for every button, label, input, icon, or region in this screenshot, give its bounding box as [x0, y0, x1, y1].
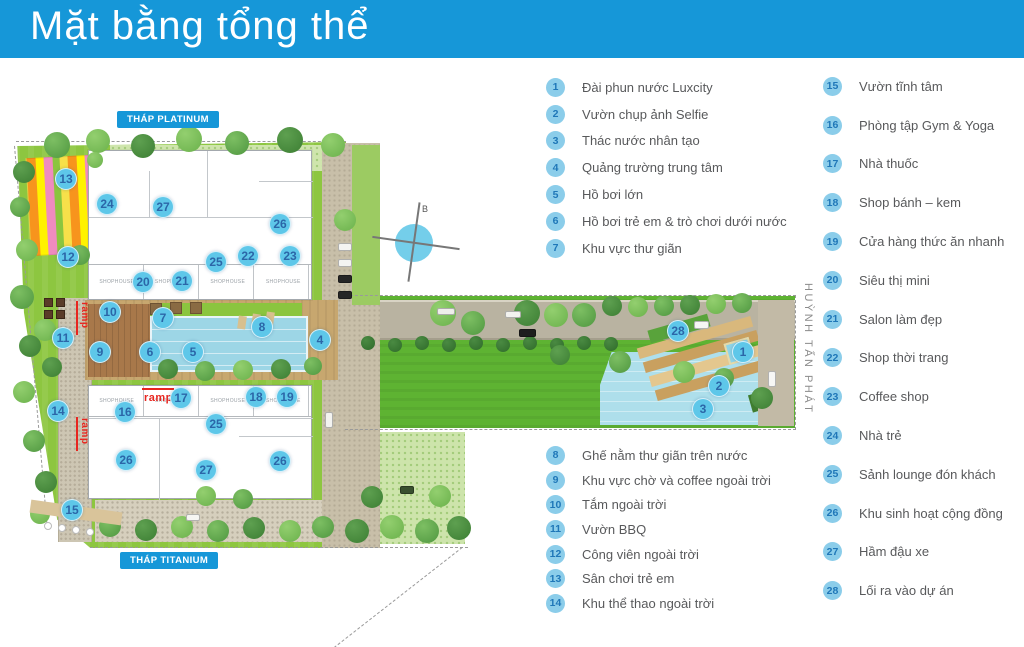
legend-column-center-bottom: 8Ghế nằm thư giãn trên nước9Khu vực chờ …	[546, 443, 771, 616]
legend-item-label: Vườn BBQ	[582, 522, 646, 537]
tree	[196, 486, 216, 506]
tree	[131, 134, 155, 158]
legend-item-label: Siêu thị mini	[859, 273, 930, 288]
tree	[87, 152, 103, 168]
tree	[523, 336, 537, 350]
legend-item-12: 12Công viên ngoài trời	[546, 542, 771, 567]
tree	[321, 133, 345, 157]
map-marker-20: 20	[132, 271, 154, 293]
vehicle-icon	[325, 412, 333, 428]
tree	[233, 489, 253, 509]
tree	[602, 296, 622, 316]
map-marker-4: 4	[309, 329, 331, 351]
map-marker-28: 28	[667, 320, 689, 342]
legend-item-20: 20Siêu thị mini	[823, 261, 1004, 300]
tree	[654, 296, 674, 316]
legend-item-label: Hầm đậu xe	[859, 544, 929, 559]
legend-item-label: Salon làm đẹp	[859, 312, 942, 327]
ramp-line	[76, 417, 78, 451]
tree	[86, 129, 110, 153]
tree	[550, 345, 570, 365]
tree	[609, 351, 631, 373]
tree	[469, 336, 483, 350]
legend-number-badge: 28	[823, 581, 842, 600]
map-marker-26: 26	[269, 213, 291, 235]
lounge-chair	[86, 528, 94, 536]
legend-item-10: 10Tắm ngoài trời	[546, 492, 771, 517]
legend-item-label: Tắm ngoài trời	[582, 497, 666, 512]
tree	[207, 520, 229, 542]
vehicle-icon	[338, 291, 352, 299]
map-marker-21: 21	[171, 270, 193, 292]
tower-label-platinum: THÁP PLATINUM	[117, 111, 219, 128]
tree	[673, 361, 695, 383]
legend-item-label: Quảng trường trung tâm	[582, 160, 723, 175]
legend-item-22: 22Shop thời trang	[823, 339, 1004, 378]
legend-item-label: Vườn tĩnh tâm	[859, 79, 943, 94]
vehicle-icon	[694, 321, 709, 329]
tree	[10, 197, 30, 217]
ramp-label: ramp	[79, 418, 90, 444]
legend-item-11: 11Vườn BBQ	[546, 517, 771, 542]
vehicle-icon	[437, 308, 455, 315]
pergola	[44, 298, 53, 307]
legend-number-badge: 20	[823, 271, 842, 290]
legend-item-25: 25Sảnh lounge đón khách	[823, 455, 1004, 494]
map-marker-3: 3	[692, 398, 714, 420]
tree	[706, 294, 726, 314]
legend-item-label: Khu thể thao ngoài trời	[582, 596, 714, 611]
tree	[429, 485, 451, 507]
ramp-label: ramp	[144, 392, 173, 404]
map-marker-19: 19	[276, 386, 298, 408]
ramp-line	[76, 301, 78, 335]
tree	[415, 519, 439, 543]
map-marker-25: 25	[205, 251, 227, 273]
tree	[447, 516, 471, 540]
legend-number-badge: 13	[546, 569, 565, 588]
map-marker-27: 27	[195, 459, 217, 481]
legend-item-label: Hồ bơi lớn	[582, 187, 643, 202]
legend-item-13: 13Sân chơi trẻ em	[546, 566, 771, 591]
room-label: SHOPHOUSE	[99, 279, 134, 285]
compass-north-label: B	[422, 204, 428, 214]
legend-item-17: 17Nhà thuốc	[823, 145, 1004, 184]
legend-item-14: 14Khu thể thao ngoài trời	[546, 591, 771, 616]
vehicle-icon	[338, 275, 352, 283]
legend-number-badge: 6	[546, 212, 565, 231]
street-label: HUỲNH TẤN PHÁT	[802, 283, 814, 414]
legend-number-badge: 15	[823, 77, 842, 96]
tree	[23, 430, 45, 452]
legend-number-badge: 23	[823, 387, 842, 406]
map-marker-5: 5	[182, 341, 204, 363]
page-header: Mặt bằng tổng thể	[0, 0, 1024, 58]
vehicle-icon	[400, 486, 414, 494]
tree	[415, 336, 429, 350]
legend-number-badge: 7	[546, 239, 565, 258]
tree	[44, 132, 70, 158]
tree	[135, 519, 157, 541]
legend-number-badge: 12	[546, 545, 565, 564]
map-marker-14: 14	[47, 400, 69, 422]
tree	[279, 520, 301, 542]
legend-number-badge: 21	[823, 310, 842, 329]
legend-item-label: Cửa hàng thức ăn nhanh	[859, 234, 1004, 249]
map-marker-16: 16	[114, 401, 136, 423]
legend-item-2: 2Vườn chụp ảnh Selfie	[546, 101, 787, 128]
vehicle-icon	[768, 371, 776, 387]
tree	[572, 303, 596, 327]
vehicle-icon	[338, 259, 352, 267]
tree	[176, 126, 202, 152]
pergola	[56, 310, 65, 319]
tree	[544, 303, 568, 327]
legend-item-6: 6Hồ bơi trẻ em & trò chơi dưới nước	[546, 208, 787, 235]
tree	[628, 297, 648, 317]
legend-item-label: Nhà thuốc	[859, 156, 918, 171]
legend-item-label: Khu vực chờ và coffee ngoài trời	[582, 473, 771, 488]
legend-number-badge: 17	[823, 154, 842, 173]
cabana	[190, 302, 202, 314]
legend-item-label: Coffee shop	[859, 389, 929, 404]
map-marker-12: 12	[57, 246, 79, 268]
tree	[13, 161, 35, 183]
ramp-line	[142, 388, 174, 390]
legend-number-badge: 25	[823, 465, 842, 484]
vehicle-icon	[519, 329, 536, 337]
tower-label-titanium: THÁP TITANIUM	[120, 552, 218, 569]
legend-item-16: 16Phòng tập Gym & Yoga	[823, 106, 1004, 145]
legend-item-label: Sảnh lounge đón khách	[859, 467, 996, 482]
tree	[243, 517, 265, 539]
shophouse-row: SHOPHOUSESHOPHOUSESHOPHOUSESHOPHOUSE	[89, 264, 311, 299]
page-title: Mặt bằng tổng thể	[30, 4, 369, 49]
legend-item-21: 21Salon làm đẹp	[823, 300, 1004, 339]
legend-item-28: 28Lối ra vào dự án	[823, 571, 1004, 610]
map-marker-10: 10	[99, 301, 121, 323]
legend-item-label: Vườn chụp ảnh Selfie	[582, 107, 708, 122]
map-marker-6: 6	[139, 341, 161, 363]
room-label: SHOPHOUSE	[210, 398, 245, 404]
map-marker-23: 23	[279, 245, 301, 267]
tree	[496, 338, 510, 352]
tree	[42, 357, 62, 377]
tree	[195, 361, 215, 381]
tree	[461, 311, 485, 335]
tree	[271, 359, 291, 379]
tree	[158, 359, 178, 379]
map-marker-17: 17	[170, 387, 192, 409]
legend-item-24: 24Nhà trẻ	[823, 416, 1004, 455]
legend-number-badge: 11	[546, 520, 565, 539]
tree	[380, 515, 404, 539]
vehicle-icon	[186, 514, 200, 521]
tree	[10, 285, 34, 309]
map-marker-18: 18	[245, 386, 267, 408]
legend-number-badge: 4	[546, 158, 565, 177]
compass: B	[376, 200, 466, 290]
tree	[304, 357, 322, 375]
pergola	[56, 298, 65, 307]
legend-number-badge: 16	[823, 116, 842, 135]
lounge-chair	[72, 526, 80, 534]
map-marker-11: 11	[52, 327, 74, 349]
tree	[751, 387, 773, 409]
tree	[233, 360, 253, 380]
legend-item-label: Shop bánh – kem	[859, 195, 961, 210]
legend-number-badge: 18	[823, 193, 842, 212]
legend-item-1: 1Đài phun nước Luxcity	[546, 74, 787, 101]
tree	[577, 336, 591, 350]
tree	[732, 293, 752, 313]
legend-item-label: Hồ bơi trẻ em & trò chơi dưới nước	[582, 214, 787, 229]
legend-item-label: Thác nước nhân tạo	[582, 133, 700, 148]
tree	[35, 471, 57, 493]
legend-number-badge: 19	[823, 232, 842, 251]
tree	[345, 519, 369, 543]
map-marker-22: 22	[237, 245, 259, 267]
legend-item-8: 8Ghế nằm thư giãn trên nước	[546, 443, 771, 468]
room-label: SHOPHOUSE	[210, 279, 245, 285]
tree	[312, 516, 334, 538]
legend-item-7: 7Khu vực thư giãn	[546, 235, 787, 262]
map-marker-7: 7	[152, 307, 174, 329]
map-marker-8: 8	[251, 316, 273, 338]
legend-number-badge: 1	[546, 78, 565, 97]
legend-number-badge: 24	[823, 426, 842, 445]
map-marker-15: 15	[61, 499, 83, 521]
legend-number-badge: 14	[546, 594, 565, 613]
tree	[16, 239, 38, 261]
legend-item-label: Sân chơi trẻ em	[582, 571, 674, 586]
tree	[604, 337, 618, 351]
map-marker-24: 24	[96, 193, 118, 215]
legend-item-label: Nhà trẻ	[859, 428, 902, 443]
legend-item-3: 3Thác nước nhân tạo	[546, 128, 787, 155]
pergola	[44, 310, 53, 319]
room-label: SHOPHOUSE	[266, 279, 301, 285]
legend-number-badge: 2	[546, 105, 565, 124]
legend-number-badge: 10	[546, 495, 565, 514]
tree	[388, 338, 402, 352]
site-boundary	[345, 295, 796, 430]
lounge-chair	[58, 524, 66, 532]
legend-number-badge: 27	[823, 542, 842, 561]
site-boundary	[90, 547, 468, 548]
legend-item-19: 19Cửa hàng thức ăn nhanh	[823, 222, 1004, 261]
legend-number-badge: 8	[546, 446, 565, 465]
legend-item-label: Phòng tập Gym & Yoga	[859, 118, 994, 133]
legend-item-label: Ghế nằm thư giãn trên nước	[582, 448, 747, 463]
legend-number-badge: 22	[823, 348, 842, 367]
tree	[277, 127, 303, 153]
legend-item-label: Công viên ngoài trời	[582, 547, 699, 562]
legend-column-right: 15Vườn tĩnh tâm16Phòng tập Gym & Yoga17N…	[823, 67, 1004, 610]
map-marker-26: 26	[115, 449, 137, 471]
legend-item-label: Khu vực thư giãn	[582, 241, 682, 256]
tree	[361, 336, 375, 350]
vehicle-icon	[505, 311, 521, 318]
legend-item-9: 9Khu vực chờ và coffee ngoài trời	[546, 468, 771, 493]
legend-item-26: 26Khu sinh hoạt cộng đồng	[823, 494, 1004, 533]
legend-number-badge: 26	[823, 504, 842, 523]
map-marker-1: 1	[732, 341, 754, 363]
tree	[225, 131, 249, 155]
legend-number-badge: 5	[546, 185, 565, 204]
legend-item-label: Đài phun nước Luxcity	[582, 80, 713, 95]
tree	[361, 486, 383, 508]
tree	[13, 381, 35, 403]
legend-item-18: 18Shop bánh – kem	[823, 183, 1004, 222]
tree	[334, 209, 356, 231]
tree	[442, 338, 456, 352]
legend-item-4: 4Quảng trường trung tâm	[546, 154, 787, 181]
legend-item-23: 23Coffee shop	[823, 377, 1004, 416]
legend-number-badge: 3	[546, 131, 565, 150]
legend-number-badge: 9	[546, 471, 565, 490]
map-marker-25: 25	[205, 413, 227, 435]
tree	[680, 295, 700, 315]
ramp-label: ramp	[79, 302, 90, 328]
legend-item-label: Lối ra vào dự án	[859, 583, 954, 598]
lounge-chair	[44, 522, 52, 530]
map-marker-26: 26	[269, 450, 291, 472]
map-marker-27: 27	[152, 196, 174, 218]
legend-item-5: 5Hồ bơi lớn	[546, 181, 787, 208]
vehicle-icon	[338, 243, 352, 251]
legend-item-27: 27Hầm đậu xe	[823, 533, 1004, 572]
site-plan-page: Mặt bằng tổng thể	[0, 0, 1024, 647]
legend-column-center-top: 1Đài phun nước Luxcity2Vườn chụp ảnh Sel…	[546, 74, 787, 262]
legend-item-label: Khu sinh hoạt cộng đồng	[859, 506, 1003, 521]
legend-item-label: Shop thời trang	[859, 350, 948, 365]
map-marker-9: 9	[89, 341, 111, 363]
legend-item-15: 15Vườn tĩnh tâm	[823, 67, 1004, 106]
map-marker-13: 13	[55, 168, 77, 190]
map-marker-2: 2	[708, 375, 730, 397]
